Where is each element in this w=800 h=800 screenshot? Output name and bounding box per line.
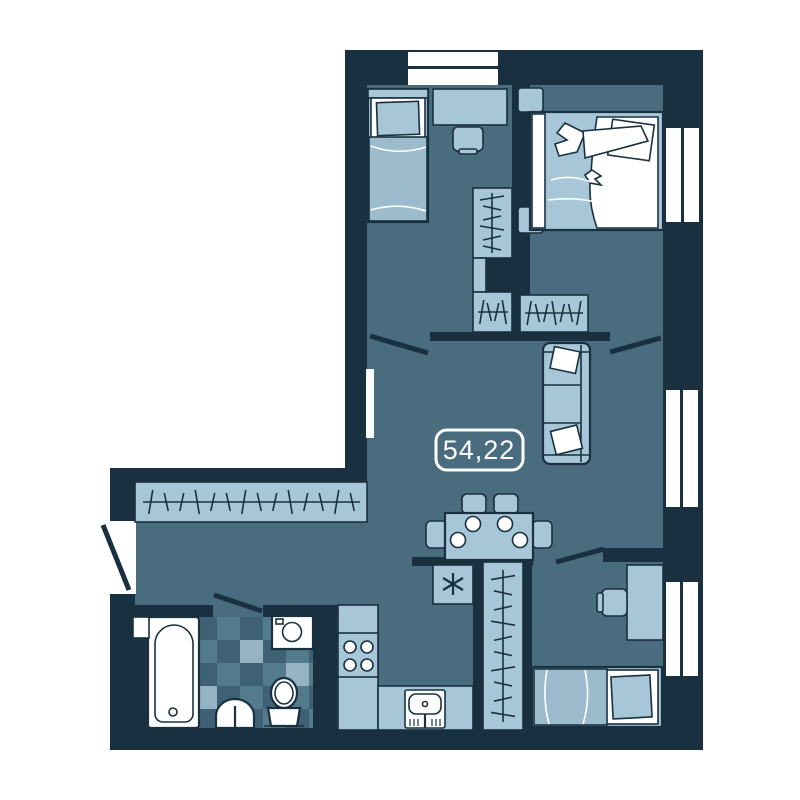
desk-chair-icon [597,589,627,616]
bathroom-tile-light [240,640,263,663]
desk-icon [433,89,507,125]
right-window-middle-pane [683,390,698,507]
desk-chair-icon [453,127,483,154]
right-window-middle-pane [666,390,680,507]
slit-window-west [366,369,374,438]
area-label-text: 54,22 [443,435,516,465]
top-window-pane [408,52,498,66]
double-bed-with-person-icon [530,112,663,230]
dining-chair-icon[interactable] [532,521,552,548]
plate-icon [451,533,466,548]
single-bed-icon [532,667,662,727]
right-window-bottom-pane [683,582,698,676]
right-window-bottom-pane [666,582,680,676]
washing-machine-icon [272,616,313,649]
right-window-top-pane [684,128,699,222]
stove-4-burners-icon [338,633,378,677]
closet-left-wall [473,562,483,730]
floor-plan-canvas: 54,22 [0,0,800,800]
sofa-icon [543,343,590,464]
area-label: 54,22 [436,430,523,470]
nightstand-icon [518,88,543,112]
dining-chair-icon[interactable] [494,494,518,514]
desk-icon [627,565,663,640]
fridge-snowflake-icon [433,565,473,604]
closet-right-wall [523,562,532,730]
wardrobe-side-shelf [473,258,486,292]
washbasin-icon [216,699,254,729]
wall-living-bottom-right [603,548,663,560]
dining-chair-icon[interactable] [462,494,486,514]
wall-top-rooms-living [430,332,610,341]
floor-plan-screenshot: 54,22 [0,0,800,800]
single-bed-icon [368,89,428,222]
plate-icon [498,517,513,532]
entrance-opening [107,521,136,594]
bathtub-icon [148,617,199,728]
bath-shelf [133,617,149,638]
bathroom-top-wall-left [130,605,213,617]
plate-icon [466,517,481,532]
top-window-pane [408,69,498,85]
wardrobe-niche [486,258,512,292]
bathroom-kitchen-divider [313,605,337,730]
right-window-top-pane [666,128,681,222]
dining-chair-icon[interactable] [426,521,447,548]
kitchen-sink-icon [405,690,445,728]
plate-icon [513,533,528,548]
